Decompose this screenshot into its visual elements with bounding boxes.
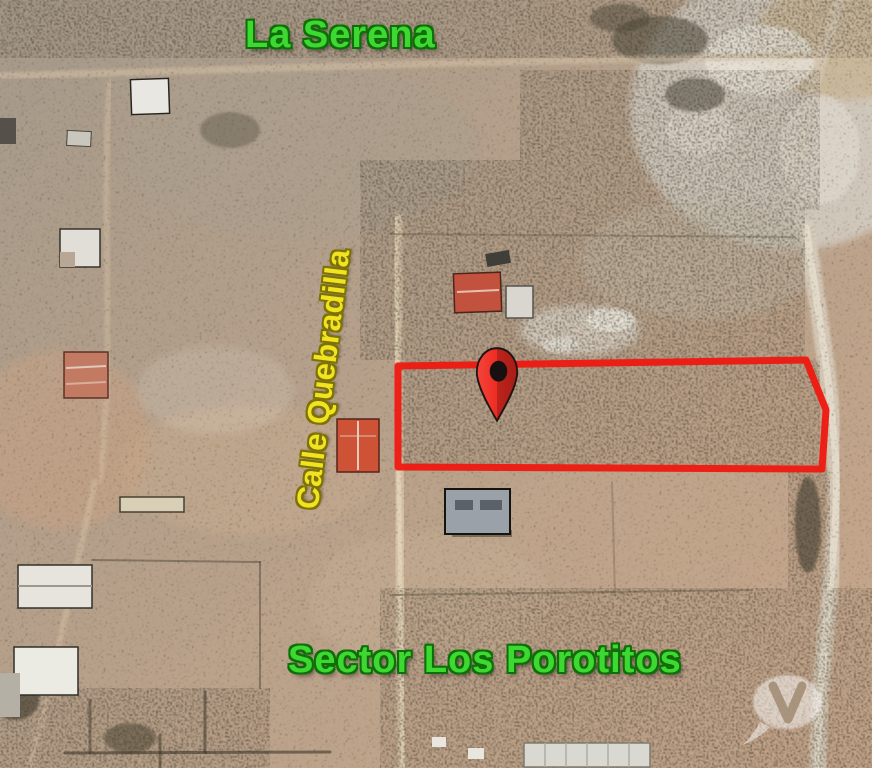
building — [130, 78, 169, 114]
building — [0, 673, 20, 717]
building — [14, 647, 78, 695]
marker-pin-hole — [490, 361, 508, 382]
building-red-roof — [453, 272, 501, 313]
building — [60, 229, 100, 267]
faint-watermark — [137, 346, 293, 434]
building-gray-house — [445, 489, 512, 537]
building — [0, 118, 16, 144]
region-label: La Serena — [245, 16, 436, 54]
building — [468, 748, 484, 759]
building-red-roof — [64, 352, 108, 398]
building-greenhouse — [524, 743, 650, 767]
building — [506, 286, 533, 318]
building — [18, 565, 92, 608]
building-red-roof — [337, 419, 379, 472]
map-screenshot: La Serena Calle Quebradilla Sector Los P… — [0, 0, 872, 768]
sector-label: Sector Los Porotitos — [288, 641, 682, 679]
building — [120, 497, 184, 512]
building — [67, 130, 92, 146]
building — [432, 737, 446, 747]
